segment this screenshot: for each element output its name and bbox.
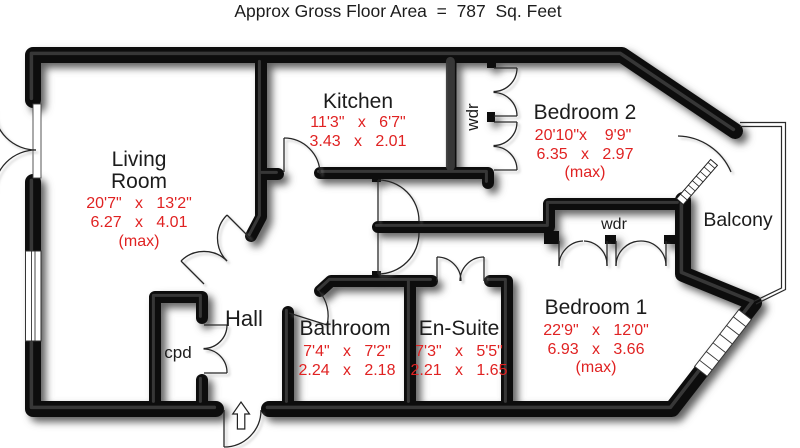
- svg-text:3.43 x 2.01: 3.43 x 2.01: [310, 133, 407, 150]
- svg-text:20'7" x 13'2": 20'7" x 13'2": [86, 195, 192, 212]
- svg-text:6.27 x 4.01: 6.27 x 4.01: [91, 214, 188, 231]
- svg-text:Bedroom 2: Bedroom 2: [534, 101, 637, 124]
- svg-text:Kitchen: Kitchen: [323, 90, 393, 113]
- svg-text:Room: Room: [111, 170, 167, 193]
- svg-text:En-Suite: En-Suite: [419, 317, 500, 340]
- svg-text:Balcony: Balcony: [703, 209, 773, 231]
- svg-text:Bedroom 1: Bedroom 1: [545, 296, 648, 319]
- svg-text:Approx Gross Floor Area = 78: Approx Gross Floor Area = 787 Sq. Feet: [234, 1, 561, 21]
- svg-text:wdr: wdr: [600, 216, 627, 233]
- svg-text:(max): (max): [565, 164, 606, 181]
- svg-text:22'9" x 12'0": 22'9" x 12'0": [543, 322, 649, 339]
- svg-text:6.35 x 2.97: 6.35 x 2.97: [537, 146, 634, 163]
- svg-text:20'10"x 9'9": 20'10"x 9'9": [535, 127, 632, 144]
- svg-text:7'4" x 7'2": 7'4" x 7'2": [303, 343, 391, 360]
- svg-text:Living: Living: [112, 148, 167, 171]
- svg-text:(max): (max): [119, 233, 160, 250]
- svg-text:7'3" x 5'5": 7'3" x 5'5": [415, 343, 503, 360]
- svg-text:2.24 x 2.18: 2.24 x 2.18: [299, 362, 396, 379]
- svg-text:Bathroom: Bathroom: [299, 317, 390, 340]
- svg-text:(max): (max): [576, 359, 617, 376]
- svg-text:11'3" x 6'7": 11'3" x 6'7": [310, 114, 405, 131]
- svg-text:2.21 x 1.65: 2.21 x 1.65: [411, 362, 508, 379]
- svg-text:6.93 x 3.66: 6.93 x 3.66: [548, 341, 645, 358]
- svg-text:Hall: Hall: [225, 306, 263, 331]
- svg-text:wdr: wdr: [463, 103, 482, 132]
- svg-text:cpd: cpd: [164, 343, 191, 362]
